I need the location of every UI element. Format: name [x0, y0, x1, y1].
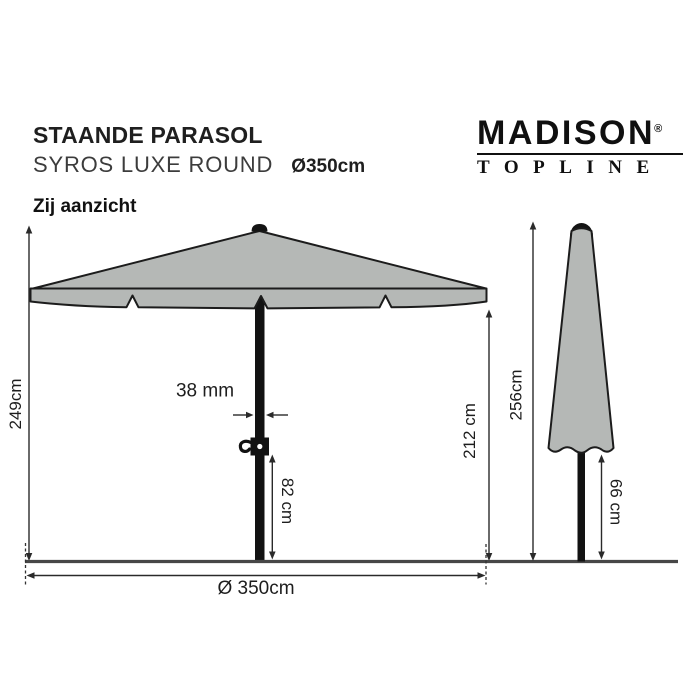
- arrow-up-66: [598, 455, 605, 463]
- arrow-up-82: [269, 455, 276, 463]
- arrow-left-38: [266, 412, 274, 419]
- crank-handle: [240, 441, 251, 451]
- arrow-down-82: [269, 552, 276, 560]
- dim-label-open-total-height: 249cm: [6, 378, 25, 429]
- arrow-down-256: [530, 553, 537, 561]
- arrow-right-350: [478, 572, 486, 579]
- arrow-down-212: [486, 553, 493, 561]
- dim-label-open-width: Ø 350cm: [217, 578, 294, 599]
- open-parasol-pole: [255, 289, 265, 562]
- dim-label-crank-height: 82 cm: [278, 478, 297, 524]
- arrow-up-249: [26, 226, 33, 234]
- dim-label-closed-clearance: 66 cm: [607, 479, 626, 525]
- page-background: { "header": { "product_name": "STAANDE P…: [0, 0, 700, 700]
- open-parasol-finial: [252, 224, 268, 232]
- parasol-diagram: 249cm 212 cm 38 mm 82 cm Ø 350cm 256cm 6…: [0, 0, 700, 700]
- closed-parasol-pole: [578, 446, 586, 562]
- arrow-left-350: [27, 572, 35, 579]
- arrow-down-249: [26, 553, 33, 561]
- closed-parasol-canopy: [549, 228, 614, 453]
- dim-label-closed-total-height: 256cm: [506, 369, 525, 420]
- crank-hub: [257, 444, 262, 449]
- arrow-up-256: [530, 222, 537, 230]
- arrow-down-66: [598, 552, 605, 560]
- dim-label-pole-diameter: 38 mm: [176, 381, 234, 402]
- arrow-up-212: [486, 310, 493, 318]
- arrow-right-38: [246, 412, 254, 419]
- open-parasol-canopy: [33, 231, 486, 289]
- dim-label-open-clearance: 212 cm: [460, 403, 479, 459]
